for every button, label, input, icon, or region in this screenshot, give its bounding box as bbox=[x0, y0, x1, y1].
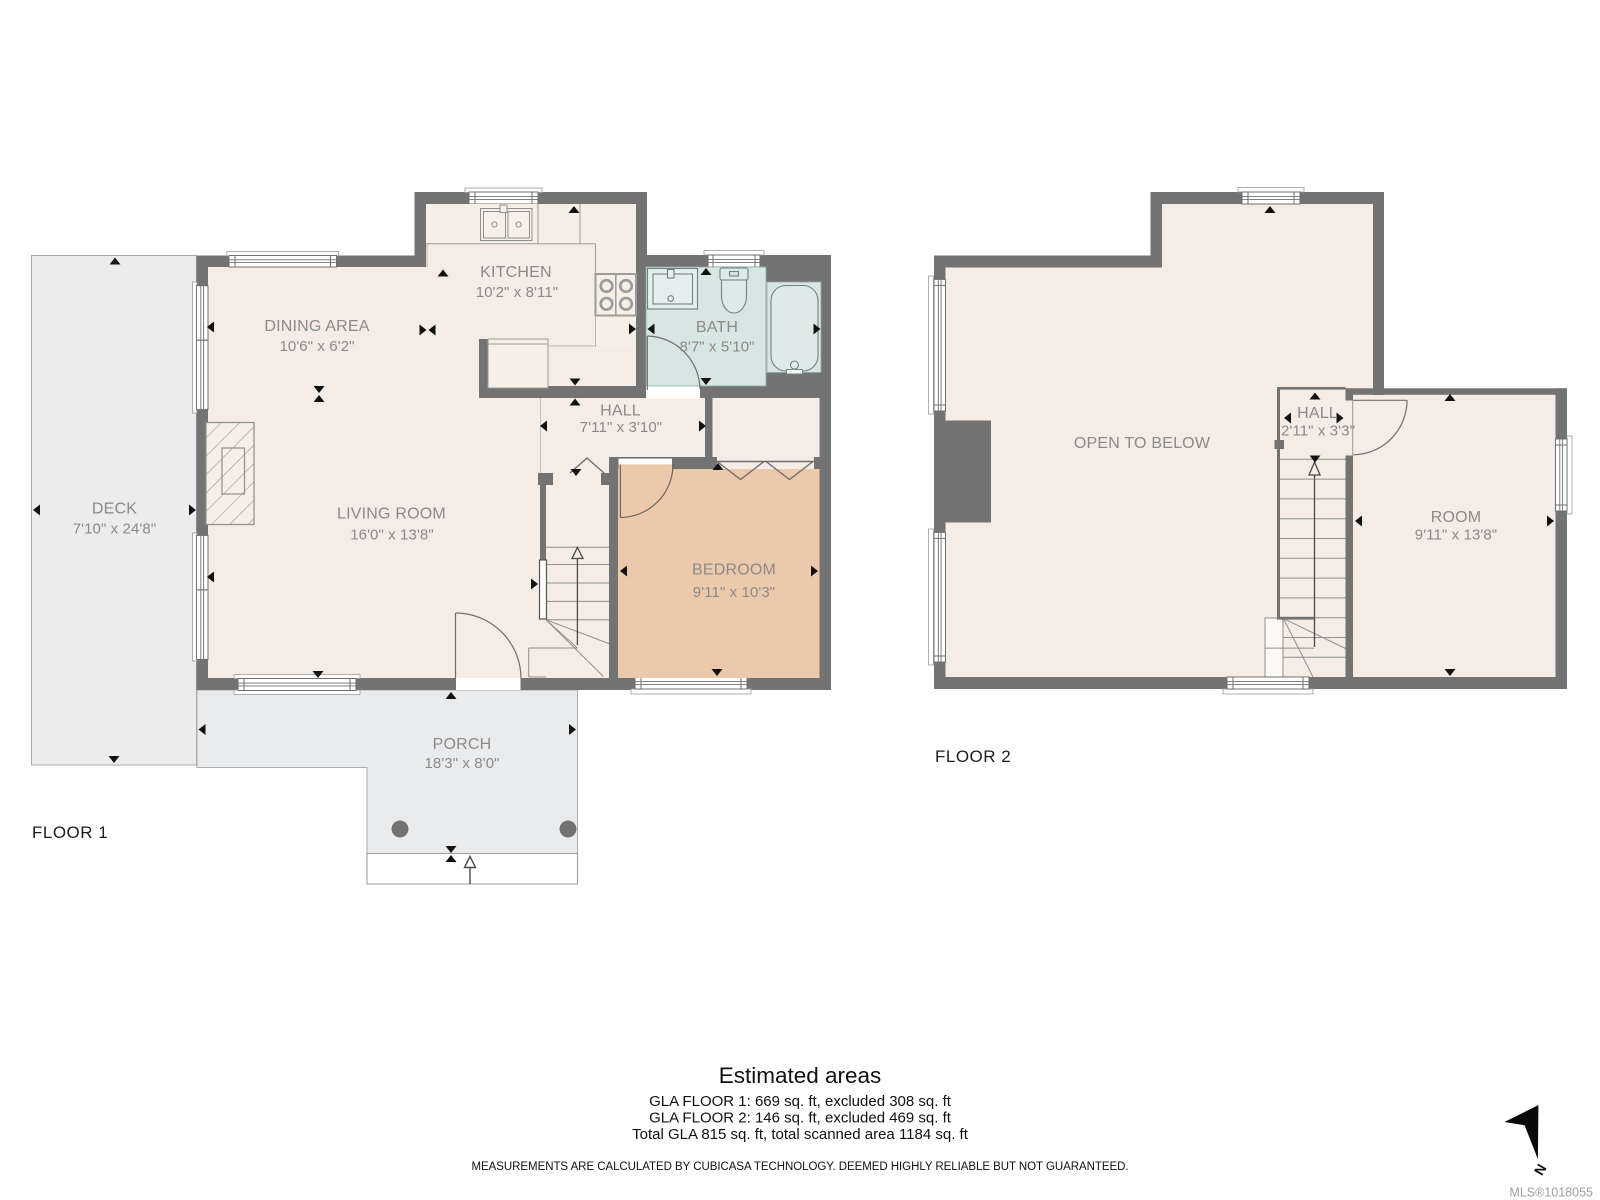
svg-text:OPEN TO BELOW: OPEN TO BELOW bbox=[1074, 435, 1211, 452]
svg-text:9'11" x 10'3": 9'11" x 10'3" bbox=[693, 584, 775, 601]
svg-text:DECK: DECK bbox=[92, 501, 137, 518]
svg-text:KITCHEN: KITCHEN bbox=[480, 264, 552, 281]
svg-text:GLA FLOOR 2: 146 sq. ft, exclu: GLA FLOOR 2: 146 sq. ft, excluded 469 sq… bbox=[649, 1110, 952, 1127]
svg-text:10'2" x 8'11": 10'2" x 8'11" bbox=[476, 284, 558, 301]
svg-text:FLOOR 1: FLOOR 1 bbox=[32, 823, 108, 842]
svg-text:Total GLA 815 sq. ft, total sc: Total GLA 815 sq. ft, total scanned area… bbox=[632, 1126, 969, 1143]
svg-text:FLOOR 2: FLOOR 2 bbox=[935, 747, 1011, 766]
svg-text:LIVING ROOM: LIVING ROOM bbox=[337, 506, 446, 523]
svg-text:HALL: HALL bbox=[1297, 405, 1338, 422]
svg-text:N: N bbox=[1531, 1161, 1550, 1178]
svg-text:2'11" x 3'3": 2'11" x 3'3" bbox=[1281, 423, 1355, 440]
svg-text:BATH: BATH bbox=[696, 319, 738, 336]
svg-text:Estimated areas: Estimated areas bbox=[719, 1063, 882, 1088]
svg-text:PORCH: PORCH bbox=[433, 736, 492, 753]
svg-text:GLA FLOOR 1: 669 sq. ft, exclu: GLA FLOOR 1: 669 sq. ft, excluded 308 sq… bbox=[649, 1093, 952, 1110]
svg-text:MLS®1018055: MLS®1018055 bbox=[1509, 1186, 1593, 1200]
svg-text:7'10" x 24'8": 7'10" x 24'8" bbox=[73, 521, 157, 538]
svg-text:MEASUREMENTS ARE CALCULATED BY: MEASUREMENTS ARE CALCULATED BY CUBICASA … bbox=[472, 1161, 1129, 1173]
svg-text:16'0" x 13'8": 16'0" x 13'8" bbox=[350, 527, 434, 544]
svg-text:10'6" x 6'2": 10'6" x 6'2" bbox=[279, 338, 354, 355]
svg-text:ROOM: ROOM bbox=[1431, 509, 1482, 526]
svg-text:8'7" x 5'10": 8'7" x 5'10" bbox=[679, 339, 754, 356]
svg-text:HALL: HALL bbox=[600, 403, 641, 420]
svg-text:BEDROOM: BEDROOM bbox=[692, 562, 776, 579]
svg-text:DINING AREA: DINING AREA bbox=[264, 318, 369, 335]
svg-text:9'11" x 13'8": 9'11" x 13'8" bbox=[1415, 527, 1497, 544]
svg-text:7'11" x 3'10": 7'11" x 3'10" bbox=[580, 419, 662, 436]
svg-text:18'3" x 8'0": 18'3" x 8'0" bbox=[424, 755, 499, 772]
